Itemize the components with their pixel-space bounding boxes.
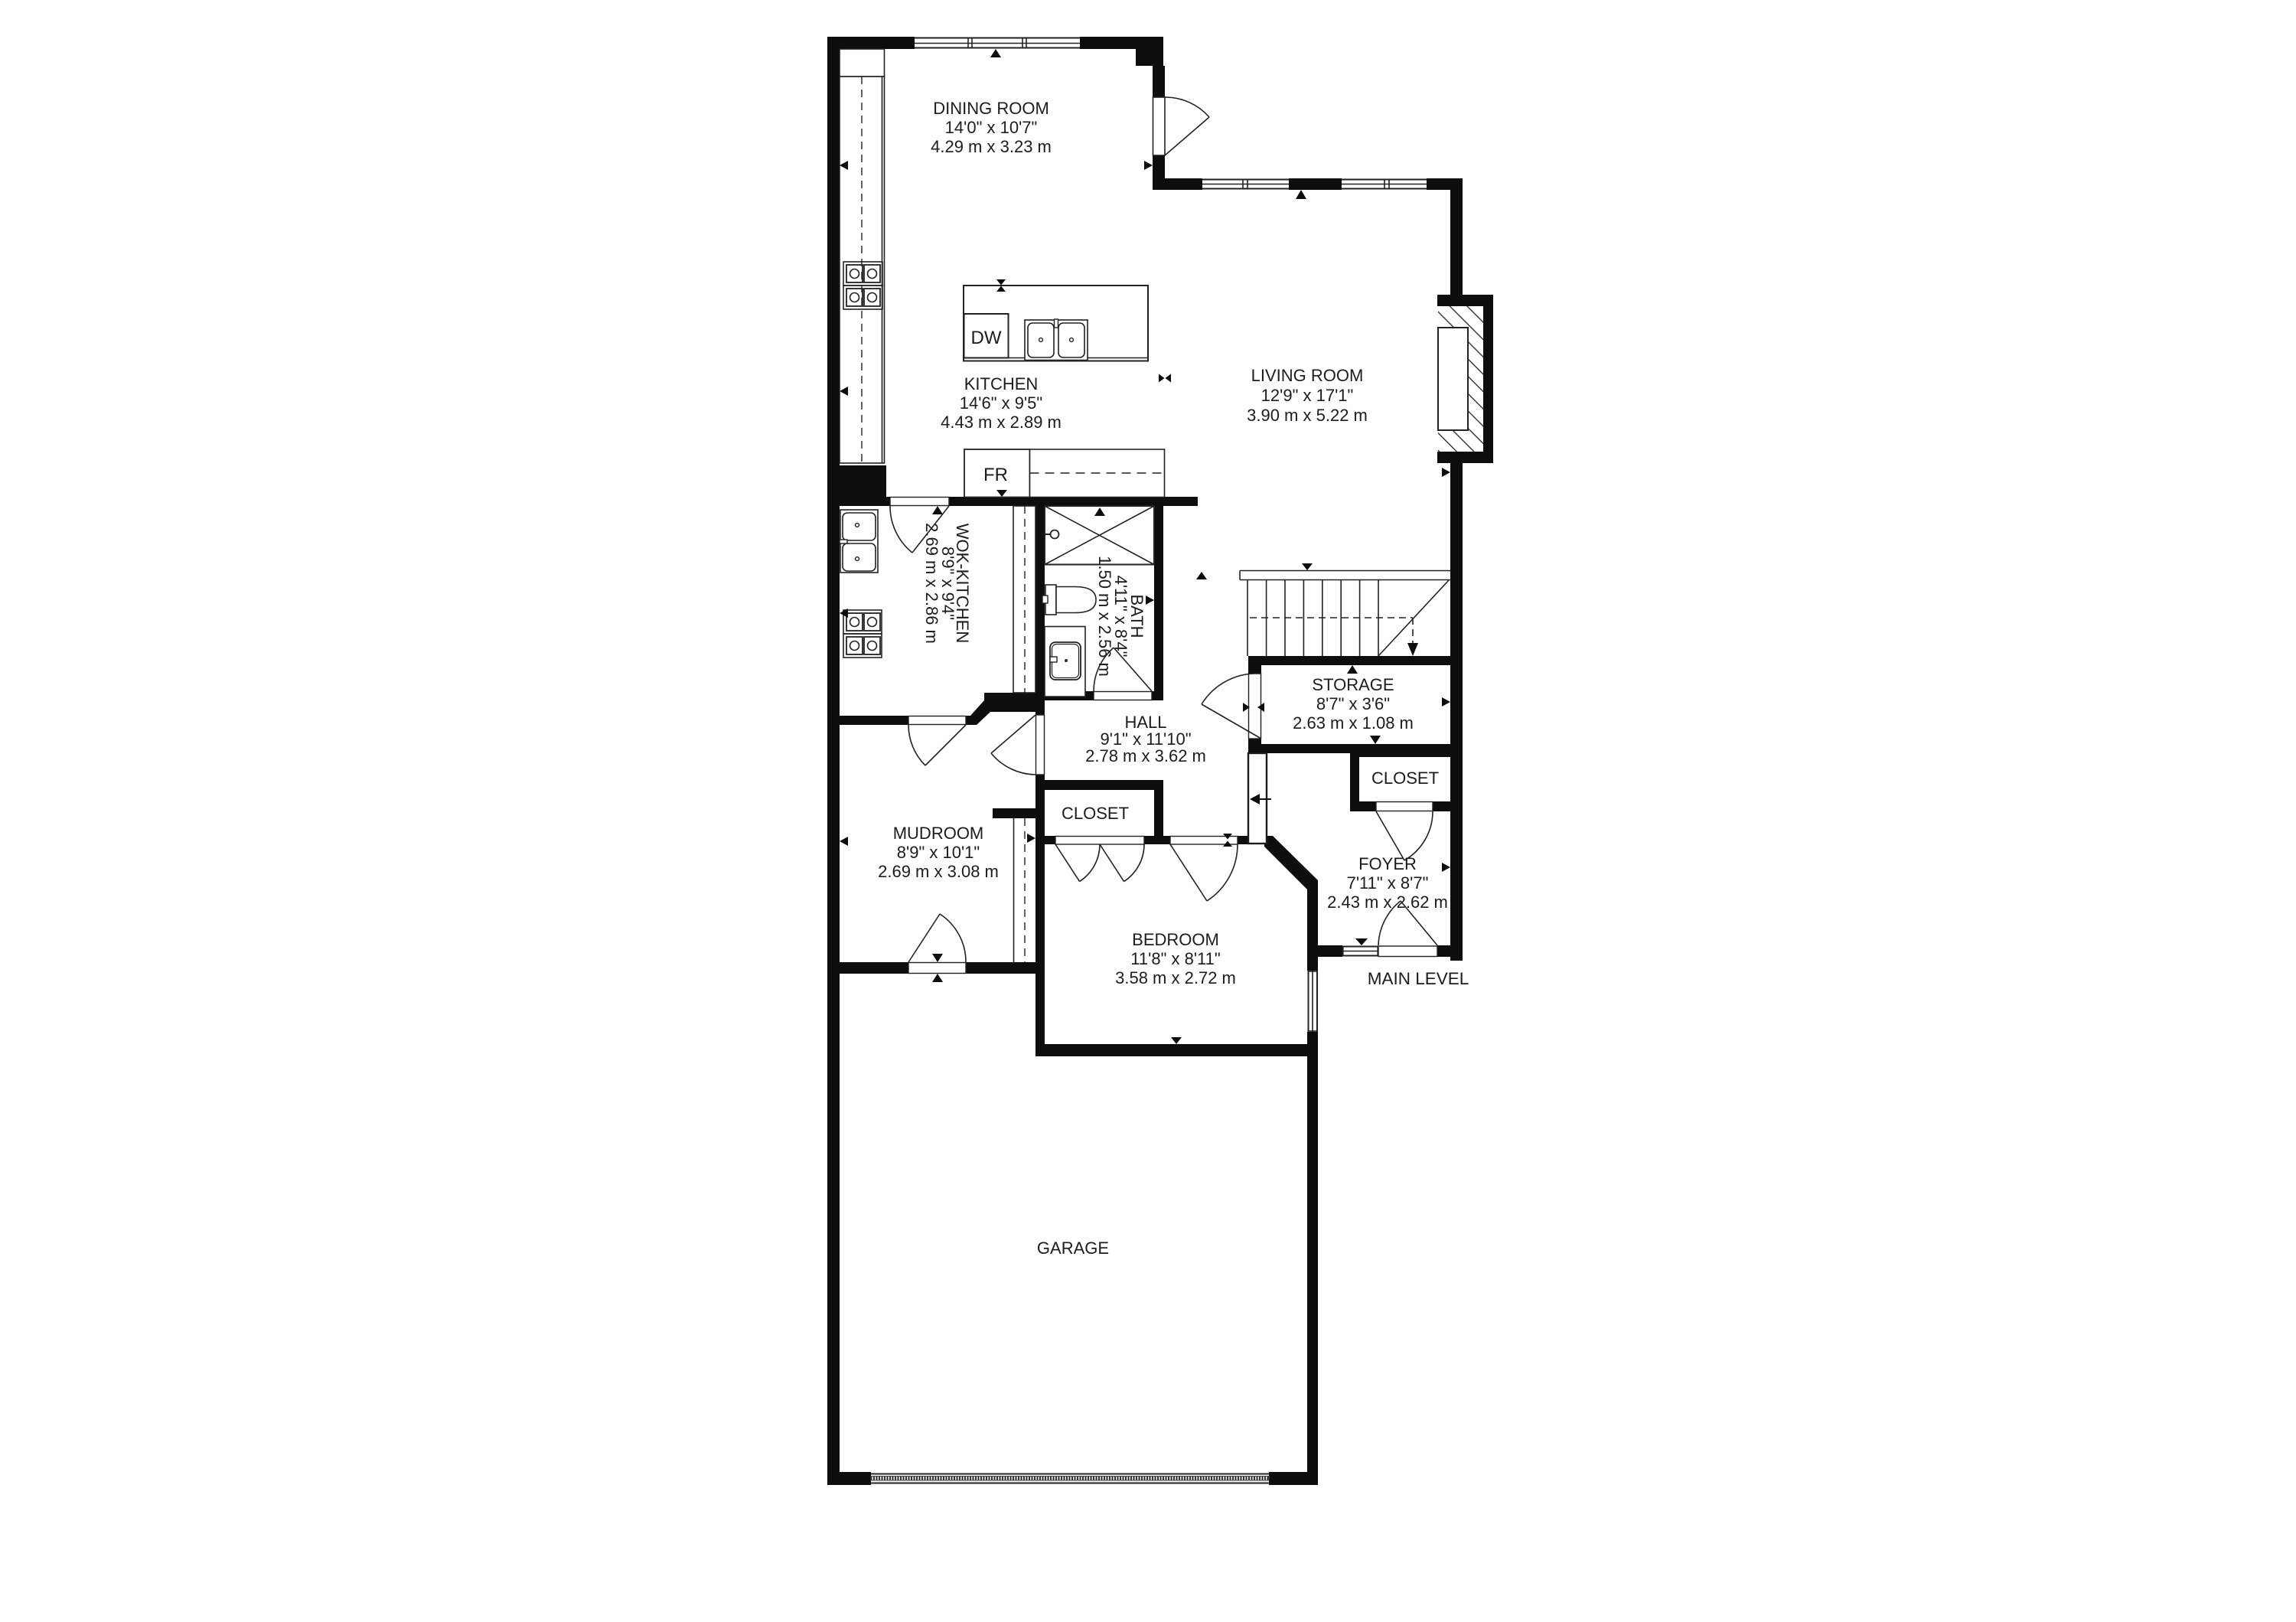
svg-text:DINING ROOM: DINING ROOM <box>933 99 1049 118</box>
svg-text:FR: FR <box>983 465 1008 485</box>
svg-text:7'11" x 8'7": 7'11" x 8'7" <box>1347 873 1429 893</box>
svg-text:STORAGE: STORAGE <box>1312 675 1394 694</box>
svg-text:3.58 m x 2.72 m: 3.58 m x 2.72 m <box>1115 968 1236 987</box>
svg-text:14'6" x 9'5": 14'6" x 9'5" <box>960 393 1042 413</box>
svg-text:4.29 m x 3.23 m: 4.29 m x 3.23 m <box>931 137 1052 156</box>
svg-text:BEDROOM: BEDROOM <box>1132 930 1219 949</box>
svg-text:2.69 m x 3.08 m: 2.69 m x 3.08 m <box>878 862 999 881</box>
svg-text:1.50 m x 2.56 m: 1.50 m x 2.56 m <box>1095 556 1114 677</box>
svg-text:CLOSET: CLOSET <box>1371 769 1439 788</box>
svg-text:LIVING ROOM: LIVING ROOM <box>1251 366 1364 385</box>
svg-text:2.69 m x 2.86 m: 2.69 m x 2.86 m <box>922 523 941 644</box>
svg-text:GARAGE: GARAGE <box>1037 1239 1109 1258</box>
svg-text:8'7" x 3'6": 8'7" x 3'6" <box>1316 694 1390 713</box>
svg-text:14'0" x 10'7": 14'0" x 10'7" <box>945 118 1038 137</box>
svg-text:2.43 m x 2.62 m: 2.43 m x 2.62 m <box>1327 893 1448 912</box>
svg-text:12'9" x 17'1": 12'9" x 17'1" <box>1261 386 1354 405</box>
svg-text:MAIN LEVEL: MAIN LEVEL <box>1368 969 1469 988</box>
svg-text:4.43 m x 2.89 m: 4.43 m x 2.89 m <box>941 413 1062 432</box>
svg-text:DW: DW <box>971 328 1002 348</box>
svg-text:CLOSET: CLOSET <box>1062 804 1129 823</box>
svg-text:2.78 m x 3.62 m: 2.78 m x 3.62 m <box>1085 746 1206 765</box>
svg-text:FOYER: FOYER <box>1358 854 1417 873</box>
svg-text:3.90 m x 5.22 m: 3.90 m x 5.22 m <box>1247 406 1368 425</box>
svg-text:11'8" x 8'11": 11'8" x 8'11" <box>1130 949 1220 968</box>
svg-text:8'9" x 10'1": 8'9" x 10'1" <box>897 843 980 862</box>
svg-text:2.63 m x 1.08 m: 2.63 m x 1.08 m <box>1293 713 1414 733</box>
svg-text:MUDROOM: MUDROOM <box>893 824 984 843</box>
svg-text:KITCHEN: KITCHEN <box>964 374 1039 393</box>
